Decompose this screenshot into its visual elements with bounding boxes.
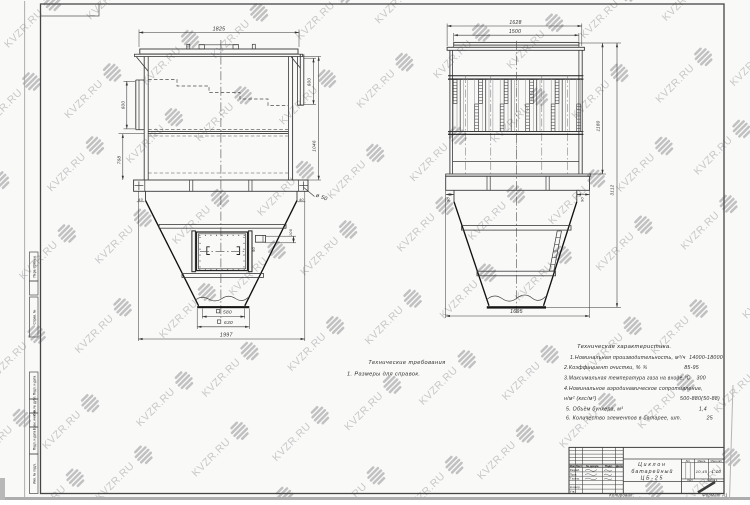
- svg-text:6. Количество элементов в б: 6. Количество элементов в батарее, шт.: [566, 416, 682, 422]
- svg-text:40: 40: [138, 198, 143, 202]
- svg-text:Масса: Масса: [698, 459, 706, 463]
- svg-text:батарейный: батарейный: [631, 468, 673, 475]
- svg-text:н/м² (кгс/м²): н/м² (кгс/м²): [564, 396, 597, 402]
- svg-text:Подп. и дата: Подп. и дата: [32, 431, 36, 451]
- svg-text:1825: 1825: [213, 27, 226, 33]
- svg-text:500-880(50-88): 500-880(50-88): [680, 396, 720, 402]
- svg-text:90: 90: [447, 197, 451, 202]
- svg-text:3112: 3112: [610, 184, 615, 195]
- svg-text:1,4: 1,4: [699, 407, 707, 413]
- svg-text:Циклон: Циклон: [638, 462, 667, 468]
- svg-text:Утв.: Утв.: [570, 490, 576, 494]
- svg-text:Т.контр.: Т.контр.: [570, 477, 580, 481]
- svg-text:5. Объём бункера, м³: 5. Объём бункера, м³: [566, 407, 623, 413]
- svg-text:1.Номинальная производительно: 1.Номинальная производительность, м³/ч: [570, 355, 686, 361]
- svg-text:1. Размеры для справок.: 1. Размеры для справок.: [347, 372, 420, 378]
- svg-text:Подп. и дата: Подп. и дата: [32, 376, 36, 396]
- svg-text:25: 25: [706, 416, 713, 422]
- svg-text:Технические требования: Технические требования: [368, 360, 445, 366]
- svg-text:600: 600: [121, 101, 126, 110]
- svg-text:ЦБ-25: ЦБ-25: [641, 475, 665, 481]
- svg-text:Справ. №: Справ. №: [32, 309, 36, 324]
- svg-text:1046: 1046: [312, 140, 317, 152]
- svg-text:768: 768: [117, 156, 122, 165]
- svg-text:Листов 1: Листов 1: [707, 478, 718, 482]
- svg-text:1180: 1180: [595, 120, 600, 131]
- svg-text:Лит.: Лит.: [686, 459, 691, 463]
- svg-text:630: 630: [224, 320, 233, 326]
- svg-text:40: 40: [299, 198, 304, 202]
- svg-text:Техническая характеристика.: Техническая характеристика.: [577, 344, 672, 350]
- svg-text:1500: 1500: [509, 29, 521, 35]
- svg-text:3.Максимальная температура г: 3.Максимальная температура газа на входе…: [564, 376, 691, 382]
- svg-text:1695: 1695: [510, 309, 523, 315]
- svg-text:Копировал:: Копировал:: [609, 493, 634, 498]
- svg-text:Лист: Лист: [687, 478, 693, 482]
- svg-text:Инв. № подл.: Инв. № подл.: [32, 463, 36, 484]
- svg-text:2.Коэффициент очистки, % ¾: 2.Коэффициент очистки, % ¾: [563, 365, 648, 371]
- svg-text:1997: 1997: [220, 333, 234, 339]
- svg-text:10,45: 10,45: [696, 469, 708, 474]
- svg-text:85-95: 85-95: [684, 365, 699, 371]
- svg-text:1628: 1628: [509, 20, 521, 26]
- svg-text:90: 90: [252, 247, 256, 252]
- svg-text:1:10: 1:10: [711, 469, 721, 474]
- svg-text:4.Номинальное аэродинамическо: 4.Номинальное аэродинамическое сопротивл…: [564, 386, 703, 392]
- svg-text:Перв. примен.: Перв. примен.: [32, 255, 36, 277]
- svg-text:Формат А1: Формат А1: [702, 493, 728, 498]
- svg-text:580: 580: [223, 310, 232, 316]
- svg-text:Дата: Дата: [616, 464, 623, 468]
- svg-text:600: 600: [306, 78, 311, 87]
- svg-text:14000-18000: 14000-18000: [689, 355, 723, 361]
- svg-text:Подп.: Подп.: [605, 464, 613, 468]
- svg-text:№ докум.: № докум.: [586, 464, 599, 468]
- svg-text:100: 100: [289, 228, 293, 236]
- svg-text:90: 90: [581, 197, 585, 202]
- svg-text:Масштаб: Масштаб: [711, 459, 723, 463]
- svg-text:300: 300: [696, 376, 706, 382]
